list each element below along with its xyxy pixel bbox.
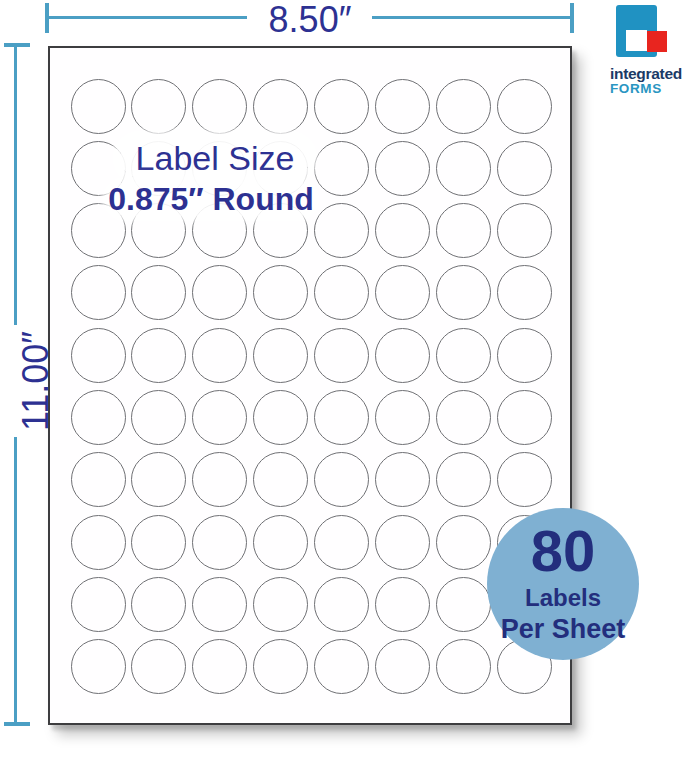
label-circle bbox=[71, 328, 126, 383]
logo-wordmark-forms: FORMS bbox=[610, 81, 692, 96]
label-circle bbox=[71, 577, 126, 632]
label-circle bbox=[375, 639, 430, 694]
label-circle bbox=[253, 515, 308, 570]
dimension-cap-right bbox=[570, 3, 574, 33]
label-circle bbox=[131, 577, 186, 632]
dimension-cap-bottom bbox=[4, 722, 30, 726]
label-circle bbox=[375, 265, 430, 320]
label-circle bbox=[192, 328, 247, 383]
label-circle bbox=[436, 390, 491, 445]
label-circle bbox=[497, 141, 552, 196]
label-circle bbox=[253, 390, 308, 445]
label-circle bbox=[131, 639, 186, 694]
label-circle bbox=[192, 390, 247, 445]
label-circle bbox=[497, 203, 552, 258]
badge-count: 80 bbox=[531, 523, 596, 578]
label-circle bbox=[375, 328, 430, 383]
label-circle bbox=[314, 265, 369, 320]
product-image: 8.50″ 11.00″ Label Size 0.875″ Round 80 … bbox=[0, 0, 692, 775]
label-circle bbox=[314, 515, 369, 570]
width-dimension-label: 8.50″ bbox=[235, 0, 385, 40]
label-circle bbox=[436, 141, 491, 196]
label-circle bbox=[192, 577, 247, 632]
label-circle bbox=[436, 203, 491, 258]
label-circle bbox=[375, 79, 430, 134]
label-circle bbox=[497, 79, 552, 134]
label-circle bbox=[253, 328, 308, 383]
label-circle bbox=[497, 328, 552, 383]
label-circle bbox=[314, 639, 369, 694]
label-circle bbox=[192, 79, 247, 134]
badge-per-sheet-text: Per Sheet bbox=[501, 615, 626, 645]
label-circle bbox=[314, 577, 369, 632]
label-circle bbox=[71, 265, 126, 320]
integrated-forms-logo: integrated FORMS bbox=[610, 5, 692, 100]
label-circle bbox=[253, 265, 308, 320]
labels-per-sheet-badge: 80 Labels Per Sheet bbox=[487, 508, 639, 660]
label-circle bbox=[436, 328, 491, 383]
label-circle bbox=[192, 639, 247, 694]
label-circle bbox=[314, 452, 369, 507]
label-circle bbox=[131, 515, 186, 570]
label-circle bbox=[436, 79, 491, 134]
label-circle bbox=[314, 390, 369, 445]
label-circle bbox=[497, 390, 552, 445]
label-circle bbox=[131, 265, 186, 320]
label-circle bbox=[192, 265, 247, 320]
height-dimension-line bbox=[14, 437, 17, 724]
label-circle bbox=[131, 452, 186, 507]
logo-white-square bbox=[626, 30, 647, 51]
label-circle bbox=[314, 141, 369, 196]
label-circle bbox=[71, 639, 126, 694]
label-circle bbox=[375, 577, 430, 632]
label-circle bbox=[253, 79, 308, 134]
label-circle bbox=[436, 515, 491, 570]
label-circle bbox=[71, 390, 126, 445]
label-circle bbox=[131, 79, 186, 134]
logo-red-square bbox=[647, 31, 667, 52]
label-circle bbox=[253, 639, 308, 694]
height-dimension-line bbox=[14, 47, 17, 325]
label-circle bbox=[131, 390, 186, 445]
label-circle bbox=[253, 577, 308, 632]
label-circle bbox=[375, 452, 430, 507]
label-size-value: 0.875″ Round bbox=[108, 182, 314, 216]
label-circle bbox=[436, 265, 491, 320]
label-circle bbox=[375, 141, 430, 196]
label-circle bbox=[314, 328, 369, 383]
label-circle bbox=[71, 515, 126, 570]
label-sheet: Label Size 0.875″ Round bbox=[48, 46, 572, 725]
label-circle bbox=[497, 452, 552, 507]
label-circle bbox=[71, 79, 126, 134]
label-circle bbox=[314, 203, 369, 258]
label-circle bbox=[436, 577, 491, 632]
label-circle bbox=[131, 328, 186, 383]
label-circle bbox=[375, 390, 430, 445]
label-circle bbox=[253, 452, 308, 507]
label-circle bbox=[375, 515, 430, 570]
label-circle bbox=[192, 452, 247, 507]
badge-labels-text: Labels bbox=[525, 585, 601, 611]
label-circle bbox=[192, 515, 247, 570]
label-circle bbox=[375, 203, 430, 258]
dimension-cap-top bbox=[4, 43, 30, 47]
label-circle bbox=[314, 79, 369, 134]
label-circle bbox=[436, 639, 491, 694]
label-circle bbox=[436, 452, 491, 507]
label-circle bbox=[71, 452, 126, 507]
width-dimension-line bbox=[49, 16, 247, 19]
label-size-title: Label Size bbox=[120, 138, 310, 178]
label-circle bbox=[497, 265, 552, 320]
width-dimension-line bbox=[372, 16, 570, 19]
